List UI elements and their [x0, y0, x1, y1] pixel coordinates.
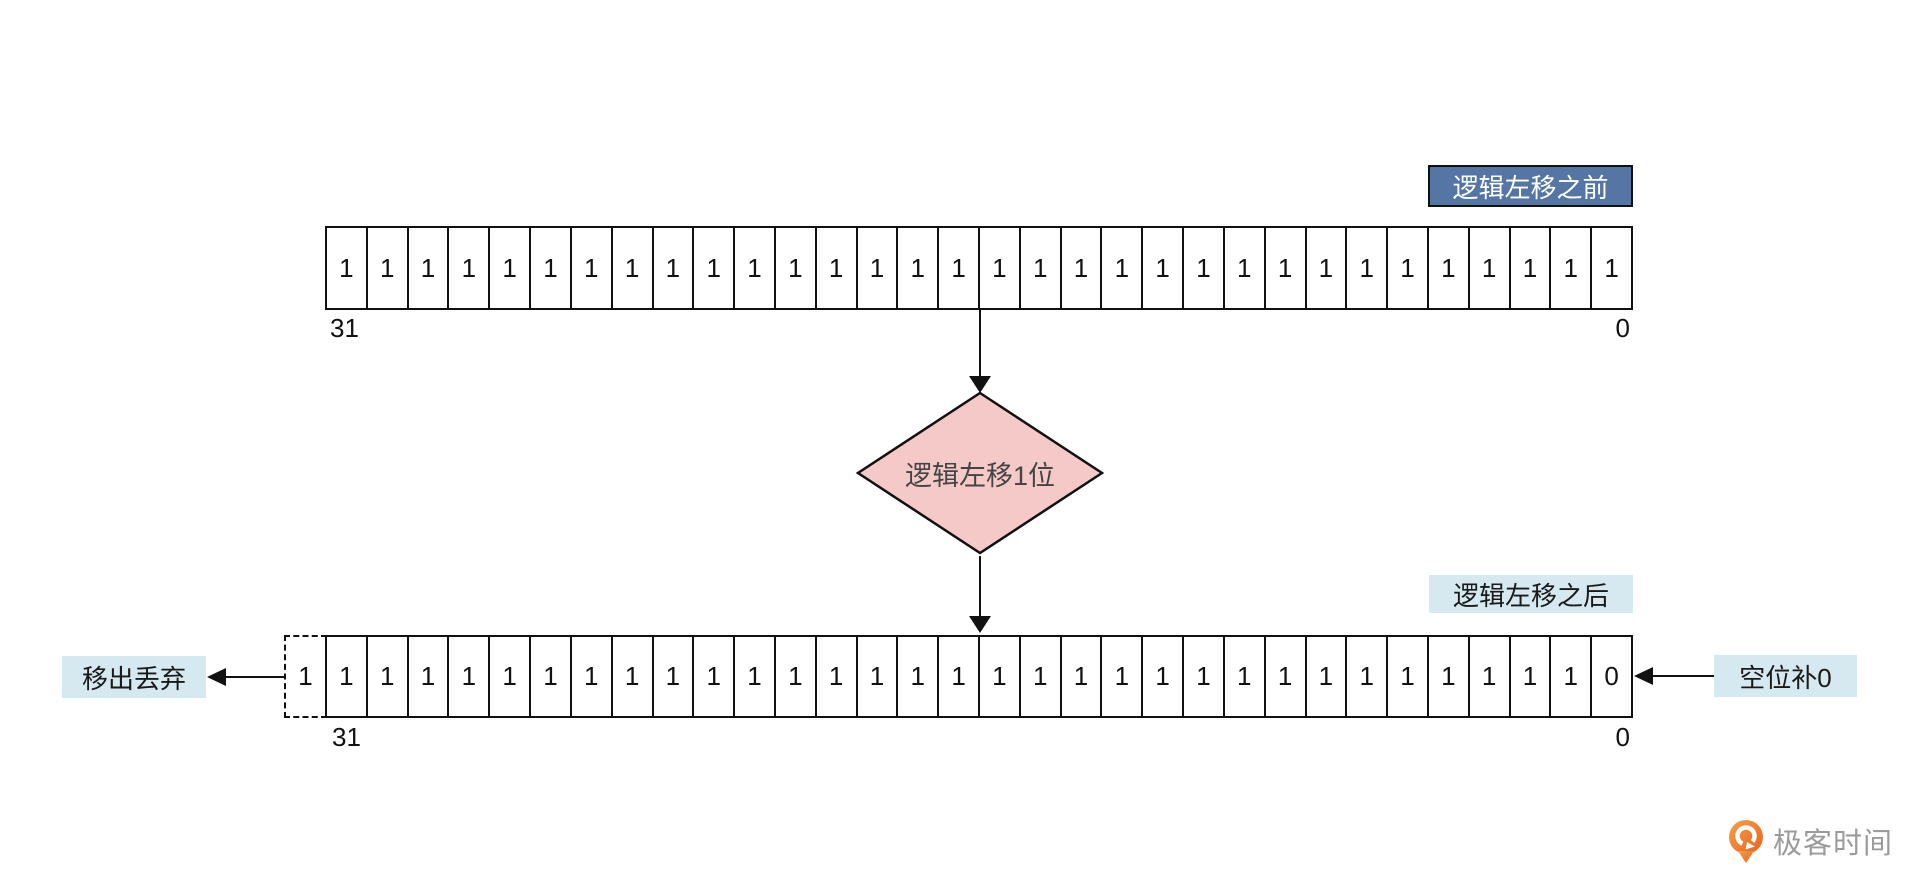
register-cell: 1	[898, 637, 939, 716]
register-cell: 1	[1143, 637, 1184, 716]
register-cell: 1	[694, 228, 735, 308]
register-cell: 1	[939, 228, 980, 308]
arrow-diamond-to-after-line	[979, 556, 981, 618]
register-cell: 1	[490, 228, 531, 308]
register-cell: 0	[1592, 637, 1631, 716]
register-cell: 1	[531, 228, 572, 308]
register-after: 11111111111111111111111111111110	[325, 635, 1633, 718]
diagram-canvas: 逻辑左移之前 11111111111111111111111111111111 …	[0, 0, 1920, 887]
register-cell: 1	[327, 228, 368, 308]
register-cell: 1	[1388, 228, 1429, 308]
title-before-shift-label: 逻辑左移之前	[1452, 168, 1608, 205]
register-cell: 1	[1470, 637, 1511, 716]
register-cell: 1	[654, 228, 695, 308]
register-before: 11111111111111111111111111111111	[325, 226, 1633, 310]
register-cell: 1	[409, 637, 450, 716]
register-cell: 1	[1184, 228, 1225, 308]
register-cell: 1	[1347, 637, 1388, 716]
before-bit-index-31: 31	[330, 313, 359, 344]
register-cell: 1	[980, 228, 1021, 308]
register-cell: 1	[1511, 637, 1552, 716]
register-cell: 1	[898, 228, 939, 308]
fill-zero-label-text: 空位补0	[1739, 658, 1831, 695]
shifted-out-bit-cell: 1	[284, 635, 327, 718]
register-cell: 1	[1266, 637, 1307, 716]
discard-label-text: 移出丢弃	[82, 659, 186, 696]
register-cell: 1	[1225, 637, 1266, 716]
register-cell: 1	[613, 228, 654, 308]
title-after-shift-label: 逻辑左移之后	[1453, 576, 1609, 613]
register-cell: 1	[409, 228, 450, 308]
register-cell: 1	[776, 228, 817, 308]
register-cell: 1	[1511, 228, 1552, 308]
register-cell: 1	[694, 637, 735, 716]
discard-label: 移出丢弃	[62, 656, 206, 698]
register-cell: 1	[735, 228, 776, 308]
register-cell: 1	[1347, 228, 1388, 308]
arrow-before-to-diamond-line	[979, 310, 981, 378]
register-cell: 1	[1307, 637, 1348, 716]
register-cell: 1	[1062, 637, 1103, 716]
operation-label: 逻辑左移1位	[853, 388, 1107, 558]
register-cell: 1	[817, 637, 858, 716]
geektime-logo-icon	[1726, 818, 1766, 864]
register-cell: 1	[1592, 228, 1631, 308]
arrow-diamond-to-after-head	[969, 616, 991, 633]
register-cell: 1	[939, 637, 980, 716]
register-cell: 1	[1429, 637, 1470, 716]
register-cell: 1	[1021, 228, 1062, 308]
register-cell: 1	[449, 228, 490, 308]
register-cell: 1	[654, 637, 695, 716]
register-cell: 1	[735, 637, 776, 716]
after-bit-index-31: 31	[332, 722, 361, 753]
register-cell: 1	[1470, 228, 1511, 308]
register-cell: 1	[1143, 228, 1184, 308]
register-cell: 1	[1429, 228, 1470, 308]
register-cell: 1	[1102, 228, 1143, 308]
register-cell: 1	[1021, 637, 1062, 716]
register-cell: 1	[1184, 637, 1225, 716]
register-cell: 1	[1225, 228, 1266, 308]
register-cell: 1	[1102, 637, 1143, 716]
register-cell: 1	[980, 637, 1021, 716]
register-cell: 1	[531, 637, 572, 716]
arrow-discard-head	[207, 668, 226, 686]
geektime-logo: 极客时间	[1726, 818, 1893, 864]
register-cell: 1	[1551, 228, 1592, 308]
title-after-shift: 逻辑左移之后	[1429, 575, 1633, 613]
register-cell: 1	[1551, 637, 1592, 716]
register-cell: 1	[776, 637, 817, 716]
register-cell: 1	[613, 637, 654, 716]
geektime-logo-text: 极客时间	[1773, 820, 1893, 862]
register-cell: 1	[858, 228, 899, 308]
register-cell: 1	[1307, 228, 1348, 308]
after-bit-index-0: 0	[1590, 722, 1630, 753]
title-before-shift: 逻辑左移之前	[1428, 165, 1633, 207]
fill-zero-label: 空位补0	[1714, 655, 1857, 697]
register-cell: 1	[858, 637, 899, 716]
register-cell: 1	[817, 228, 858, 308]
register-cell: 1	[327, 637, 368, 716]
register-cell: 1	[572, 637, 613, 716]
register-cell: 1	[1062, 228, 1103, 308]
register-cell: 1	[490, 637, 531, 716]
register-cell: 1	[572, 228, 613, 308]
arrow-discard-line	[222, 676, 284, 678]
register-cell: 1	[368, 637, 409, 716]
arrow-fill-zero-head	[1634, 667, 1653, 685]
before-bit-index-0: 0	[1590, 313, 1630, 344]
operation-diamond: 逻辑左移1位	[853, 388, 1107, 558]
register-cell: 1	[449, 637, 490, 716]
register-cell: 1	[368, 228, 409, 308]
register-cell: 1	[1388, 637, 1429, 716]
register-cell: 1	[1266, 228, 1307, 308]
arrow-fill-zero-line	[1650, 675, 1714, 677]
